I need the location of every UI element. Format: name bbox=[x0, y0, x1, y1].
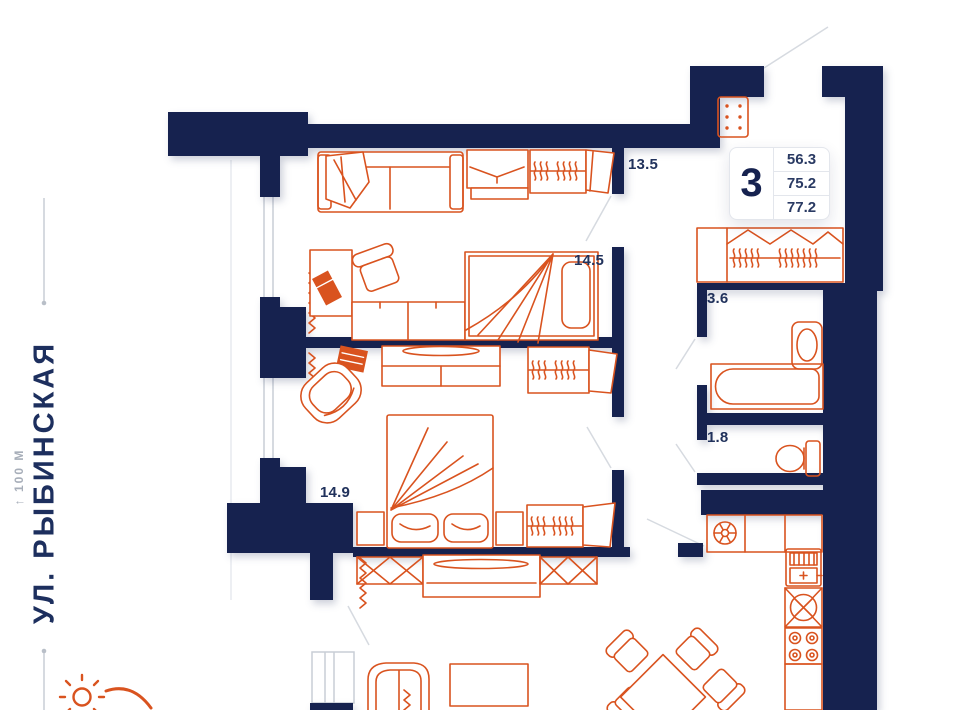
room-area-label-bedroom-1: 13.5 bbox=[628, 156, 658, 173]
area-value: 77.2 bbox=[774, 196, 829, 219]
area-value: 56.3 bbox=[774, 148, 829, 172]
sun-icon bbox=[60, 675, 151, 710]
dining-chair-icon bbox=[604, 628, 651, 675]
window-icon bbox=[264, 197, 273, 297]
room-area-label-toilet: 1.8 bbox=[707, 429, 728, 446]
vent-icon bbox=[714, 522, 736, 544]
toilet-icon bbox=[776, 441, 820, 476]
nightstand-icon bbox=[496, 512, 523, 545]
room-area-label-bedroom-2: 14.5 bbox=[574, 252, 604, 269]
cabinet-row-icon bbox=[352, 302, 465, 340]
kitchen-sink-icon bbox=[785, 588, 822, 627]
door-swing-icon bbox=[647, 519, 704, 546]
desk-icon bbox=[310, 250, 352, 316]
sofa-icon bbox=[368, 663, 429, 710]
area-value: 75.2 bbox=[774, 172, 829, 196]
washbasin-icon bbox=[792, 322, 822, 369]
dresser-icon bbox=[467, 150, 528, 199]
double-bed-icon bbox=[387, 415, 493, 548]
nightstand-icon bbox=[357, 512, 384, 545]
wardrobe-icon bbox=[697, 228, 843, 282]
wardrobe-icon bbox=[527, 503, 615, 547]
door-swing-icon bbox=[676, 339, 695, 369]
window-icon bbox=[312, 652, 354, 703]
room-area-label-bedroom-3: 14.9 bbox=[320, 484, 350, 501]
fridge-icon bbox=[786, 549, 822, 586]
door-swing-icon bbox=[587, 427, 611, 468]
sun-path-arc bbox=[106, 689, 151, 708]
door-swing-icon bbox=[764, 27, 828, 68]
stove-icon bbox=[785, 628, 822, 664]
windows-layer bbox=[231, 160, 354, 703]
office-chair-icon bbox=[351, 242, 404, 294]
coffee-table-icon bbox=[450, 664, 528, 706]
rooms-count: 3 bbox=[730, 148, 774, 219]
floor-plan-canvas bbox=[0, 0, 960, 710]
door-swing-icon bbox=[676, 444, 695, 472]
wardrobe-icon bbox=[530, 150, 614, 193]
street-name-label: УЛ. РЫБИНСКАЯ bbox=[29, 313, 62, 653]
sofa-icon bbox=[318, 152, 463, 212]
window-icon bbox=[264, 378, 273, 458]
apartment-info-badge: 3 56.3 75.2 77.2 bbox=[729, 147, 830, 220]
floor-plan-screenshot: УЛ. РЫБИНСКАЯ ↑ 100 М 13.5 14.5 14.9 3.6… bbox=[0, 0, 960, 710]
radiator-icon bbox=[360, 558, 366, 608]
kitchen-counter-icon bbox=[785, 664, 822, 710]
door-swing-icon bbox=[348, 606, 369, 645]
door-swing-icon bbox=[586, 196, 611, 241]
dresser-icon bbox=[382, 346, 500, 386]
areas-column: 56.3 75.2 77.2 bbox=[774, 148, 829, 219]
wardrobe-icon bbox=[528, 347, 617, 393]
tv-stand-icon bbox=[357, 555, 597, 597]
street-distance-label: ↑ 100 М bbox=[12, 417, 26, 537]
shoe-cabinet-icon bbox=[718, 97, 748, 137]
kitchen-counter-icon bbox=[707, 515, 822, 552]
bathtub-icon bbox=[711, 364, 823, 409]
dining-table-icon bbox=[604, 626, 747, 710]
room-area-label-bathroom: 3.6 bbox=[707, 290, 728, 307]
tv-icon bbox=[434, 560, 528, 569]
tv-icon bbox=[403, 347, 479, 356]
dining-chair-icon bbox=[673, 626, 720, 673]
dining-chair-icon bbox=[700, 666, 747, 710]
